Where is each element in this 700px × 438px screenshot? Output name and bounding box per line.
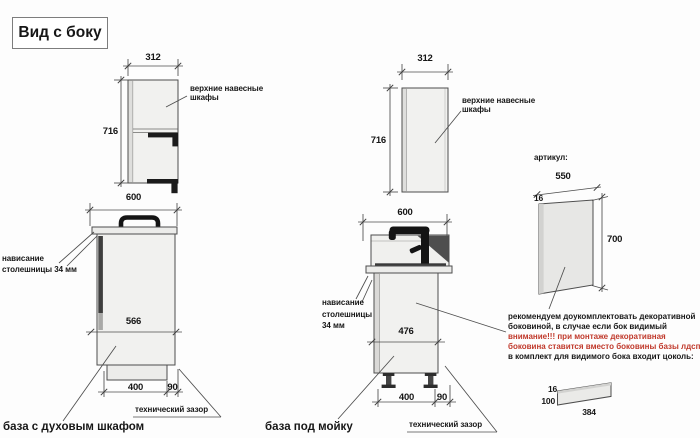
drawing-layer [0, 0, 700, 438]
sink-base-cabinet [366, 227, 452, 389]
note-line-5: в комплект для видимого бока входит цоко… [508, 352, 700, 362]
dim-plinth-height: 100 [533, 396, 555, 406]
label-wall-cabinets-left: верхние навесные шкафы [190, 84, 263, 102]
bracket-top [148, 133, 178, 138]
dim-panel-height: 700 [607, 234, 622, 245]
dim-plinth-middle: 400 [378, 392, 435, 403]
note-line-2: боковиной, в случае если бок видимый [508, 322, 700, 332]
wall-cabinet-middle [402, 88, 448, 192]
note-line-3: внимание!!! при монтаже декоративная [508, 332, 700, 342]
oven-handle [121, 218, 158, 229]
dim-plinth-thickness: 16 [543, 384, 557, 394]
dim-base-width-middle: 600 [363, 207, 447, 218]
wall-cabinet-left [128, 80, 178, 193]
label-artikul: артикул: [534, 153, 568, 162]
note-line-1: рекомендуем доукомплектовать декоративно… [508, 312, 700, 322]
dim-gap-left: 90 [164, 382, 181, 393]
oven-base-cabinet [92, 218, 177, 381]
label-tech-gap-middle: технический зазор [409, 420, 482, 429]
dim-wall-width-middle: 312 [400, 53, 450, 64]
caption-sink-base: база под мойку [265, 421, 353, 433]
label-overhang-middle: нависание столешницы 34 мм [322, 298, 372, 330]
oven-door-edge [98, 236, 103, 313]
dim-wall-width-left: 312 [126, 52, 180, 63]
plinth-piece [558, 383, 612, 405]
bracket-bottom [147, 179, 178, 184]
dim-plinth-left: 400 [104, 382, 167, 393]
countertop-left [92, 227, 177, 234]
dim-base-inner-left: 566 [90, 316, 177, 327]
title-text: Вид с боку [18, 24, 101, 42]
cabinet-leg [382, 373, 396, 388]
dim-base-width-left: 600 [90, 192, 177, 203]
label-overhang-left: нависание столешницы 34 мм [2, 254, 77, 274]
dim-plinth-length: 384 [576, 407, 602, 417]
dim-base-inner-middle: 476 [373, 326, 439, 337]
panel-note: рекомендуем доукомплектовать декоративно… [508, 312, 700, 362]
side-view-drawing: Вид с боку 312 716 верхние навесные шкаф… [0, 0, 700, 438]
cabinet-leg [424, 373, 438, 388]
plinth-left [107, 365, 167, 380]
caption-oven-base: база с духовым шкафом [3, 421, 144, 433]
label-wall-cabinets-middle: верхние навесные шкафы [462, 96, 535, 114]
page-title: Вид с боку [12, 17, 108, 49]
decorative-side-panel [539, 200, 593, 294]
dim-panel-thickness: 16 [529, 193, 543, 203]
dim-wall-height-left: 716 [98, 126, 118, 137]
note-line-4: боковина ставится вместо боковины базы л… [508, 342, 700, 352]
label-tech-gap-left: технический зазор [135, 405, 208, 414]
dim-gap-middle: 90 [432, 392, 452, 403]
dim-wall-height-middle: 716 [366, 135, 386, 146]
countertop-middle [366, 266, 452, 273]
dim-panel-width: 550 [548, 171, 578, 182]
